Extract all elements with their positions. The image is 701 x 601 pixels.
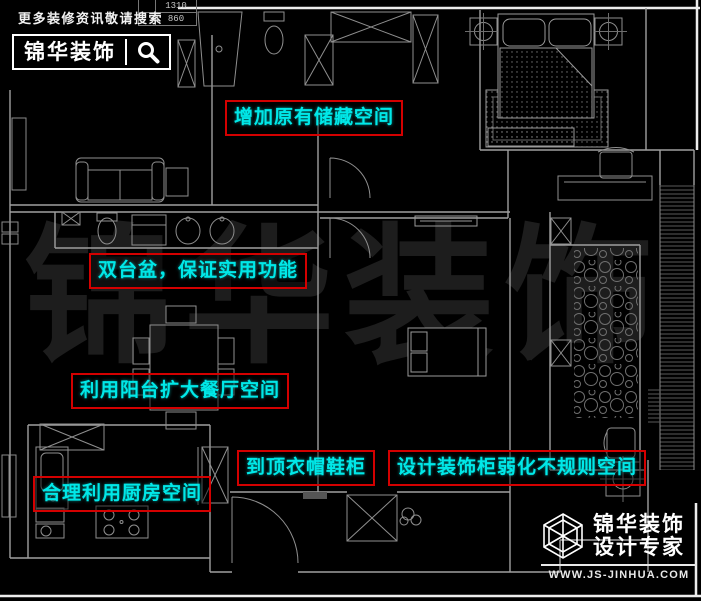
bath-basins <box>97 213 234 245</box>
doors <box>232 158 370 563</box>
footer-logo: 锦华装饰 设计专家 WWW.JS-JINHUA.COM <box>541 512 697 581</box>
master-bed <box>486 14 608 147</box>
divider <box>125 39 127 65</box>
annotation-balcony-dining: 利用阳台扩大餐厅空间 <box>71 373 289 409</box>
sofa <box>76 158 188 202</box>
pebble-floor <box>574 248 638 418</box>
search-logo: 更多装修资讯敬请搜索 锦华装饰 <box>12 6 171 70</box>
footer-subtitle: 设计专家 <box>593 536 685 559</box>
footer-brand: 锦华装饰 <box>593 513 685 536</box>
cube-logo-icon <box>541 512 585 560</box>
annotation-kitchen: 合理利用厨房空间 <box>33 476 211 512</box>
bath-top <box>198 12 284 86</box>
footer-divider <box>541 564 697 566</box>
screenshot-root: 锦华装饰 <box>0 0 701 601</box>
brand-box: 锦华装饰 <box>12 34 171 70</box>
annotation-decor-cabinet: 设计装饰柜弱化不规则空间 <box>388 450 646 486</box>
brand-text: 锦华装饰 <box>24 42 116 63</box>
hatch-areas <box>648 185 694 470</box>
annotation-storage: 增加原有储藏空间 <box>225 100 403 136</box>
footer-website: WWW.JS-JINHUA.COM <box>541 569 697 581</box>
search-tagline: 更多装修资讯敬请搜索 <box>18 8 171 27</box>
windows <box>2 118 26 517</box>
dining-set <box>133 306 234 429</box>
search-icon <box>136 40 160 64</box>
annotation-double-basin: 双台盆，保证实用功能 <box>89 253 307 289</box>
annotation-wardrobe: 到顶衣帽鞋柜 <box>237 450 375 486</box>
second-bed <box>408 216 486 376</box>
